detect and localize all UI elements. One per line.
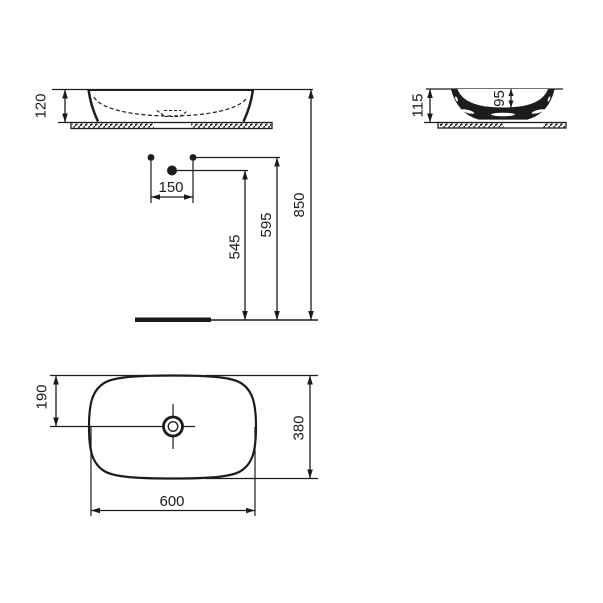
dim-label-total-height: 115 (410, 94, 427, 118)
technical-drawing-canvas: 120 115 95 (0, 0, 603, 603)
dim-label-bowl-depth: 95 (491, 90, 508, 107)
side-countertop-hatch-left (440, 124, 504, 128)
countertop-hatch-left (72, 124, 154, 128)
dim-label-hole-spacing: 150 (158, 179, 183, 196)
drain-slot-center (491, 113, 515, 116)
dim-label-basin-height: 120 (33, 93, 50, 118)
dim-label-center-offset: 190 (34, 384, 51, 409)
dim-label-basin-depth: 380 (291, 415, 308, 440)
dim-label-supply-height: 595 (258, 212, 275, 237)
countertop-hatch-right (191, 124, 271, 128)
drain-point (167, 166, 177, 176)
supply-point-right (190, 154, 197, 161)
side-countertop-hatch-right (543, 124, 565, 128)
floor-line-thick (135, 318, 211, 323)
washbasin-dimension-drawing: 120 115 95 (0, 0, 603, 603)
drain-outer-circle (164, 417, 183, 436)
dim-label-rim-height: 850 (291, 192, 308, 217)
supply-point-left (148, 154, 155, 161)
dim-label-basin-width: 600 (159, 493, 184, 510)
dim-label-drain-height: 545 (227, 234, 244, 259)
